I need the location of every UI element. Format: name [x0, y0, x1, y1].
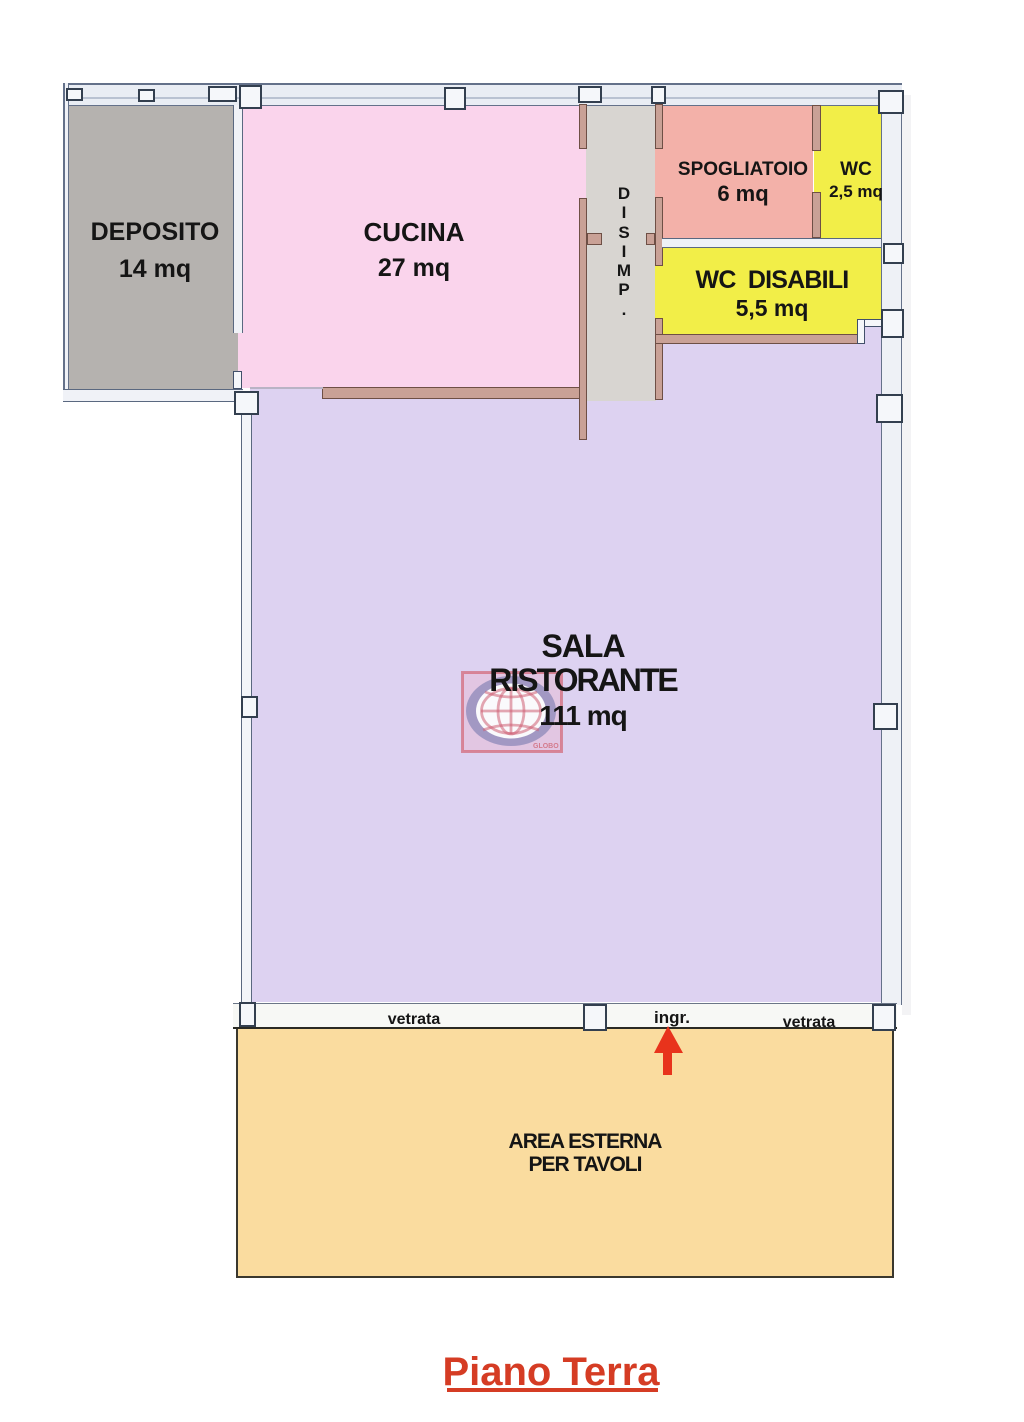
svg-text:GLOBO: GLOBO: [533, 743, 559, 750]
